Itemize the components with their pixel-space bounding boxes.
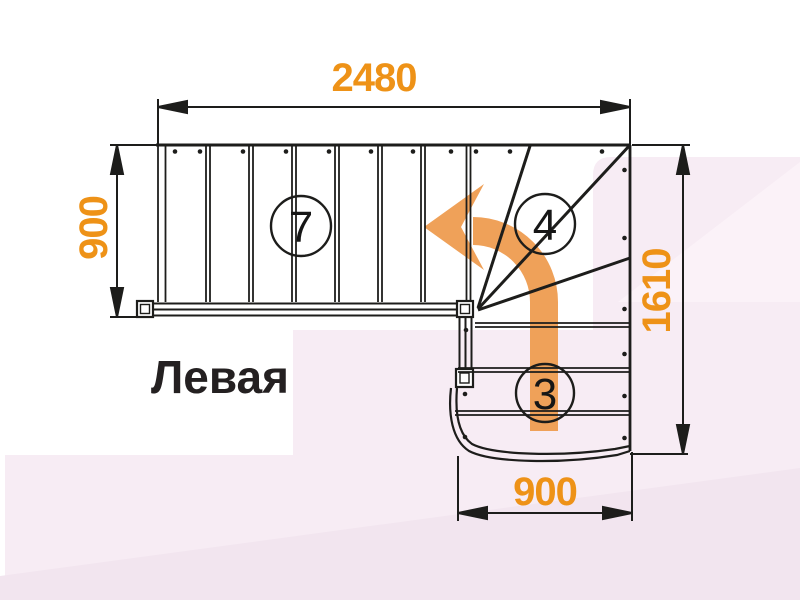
step-count-winders: 4: [533, 204, 557, 248]
staircase-plan-diagram: 2480 900 1610 900 Левая 7 4 3: [0, 0, 800, 600]
dim-label-bottom-width: 900: [513, 472, 577, 512]
plan-title: Левая: [151, 354, 289, 400]
step-count-upper-flight: 7: [289, 206, 313, 250]
dim-label-right-depth: 1610: [637, 249, 677, 334]
newel-post-left: [137, 301, 153, 317]
dim-label-left-width: 900: [74, 196, 114, 260]
step-count-lower-flight: 3: [533, 373, 557, 417]
dim-label-top-width: 2480: [332, 58, 417, 98]
newel-post-corner: [457, 301, 473, 317]
